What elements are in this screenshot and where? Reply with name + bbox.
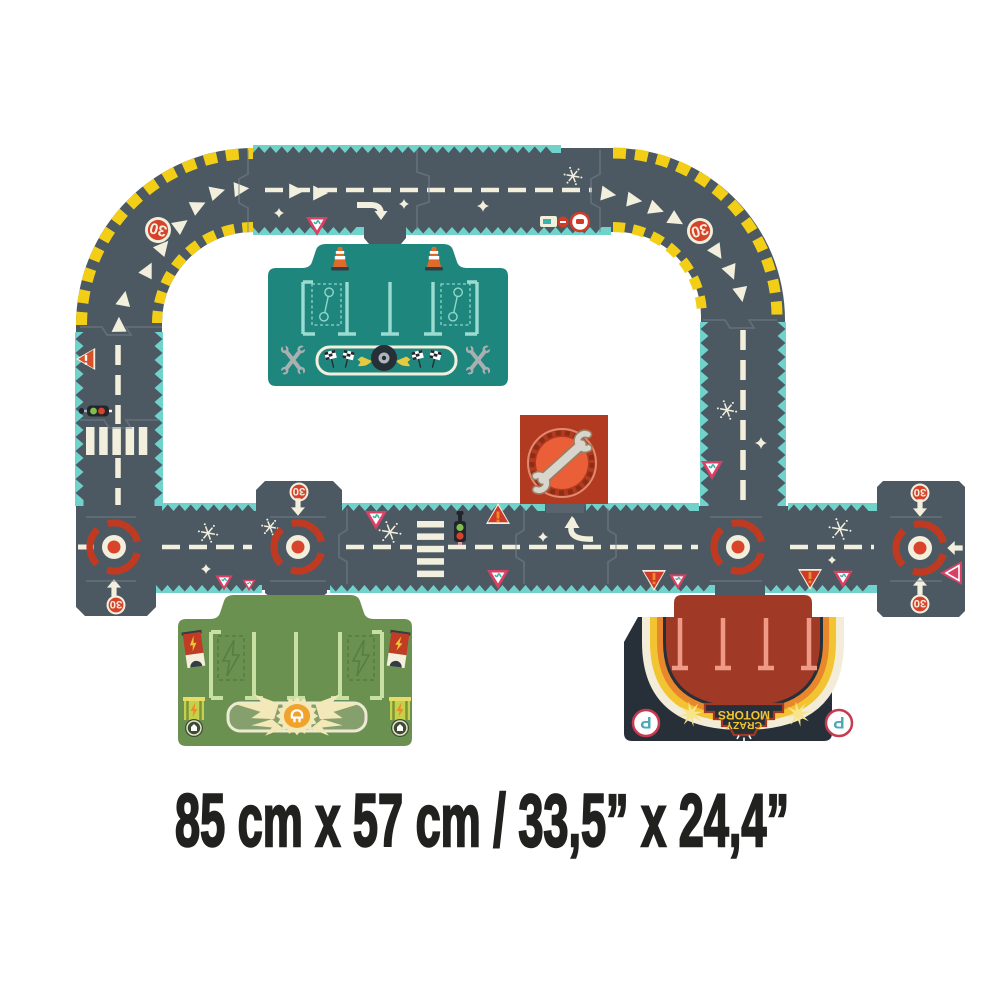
svg-text:30: 30 <box>293 485 306 497</box>
svg-text:30: 30 <box>110 598 123 610</box>
svg-text:P: P <box>833 713 844 732</box>
svg-text:30: 30 <box>914 486 927 498</box>
svg-text:85 cm x 57 cm / 33,5” x 24,4”: 85 cm x 57 cm / 33,5” x 24,4” <box>175 779 789 862</box>
svg-text:MOTORS: MOTORS <box>718 708 770 722</box>
svg-text:30: 30 <box>914 597 927 609</box>
svg-text:P: P <box>640 713 651 732</box>
